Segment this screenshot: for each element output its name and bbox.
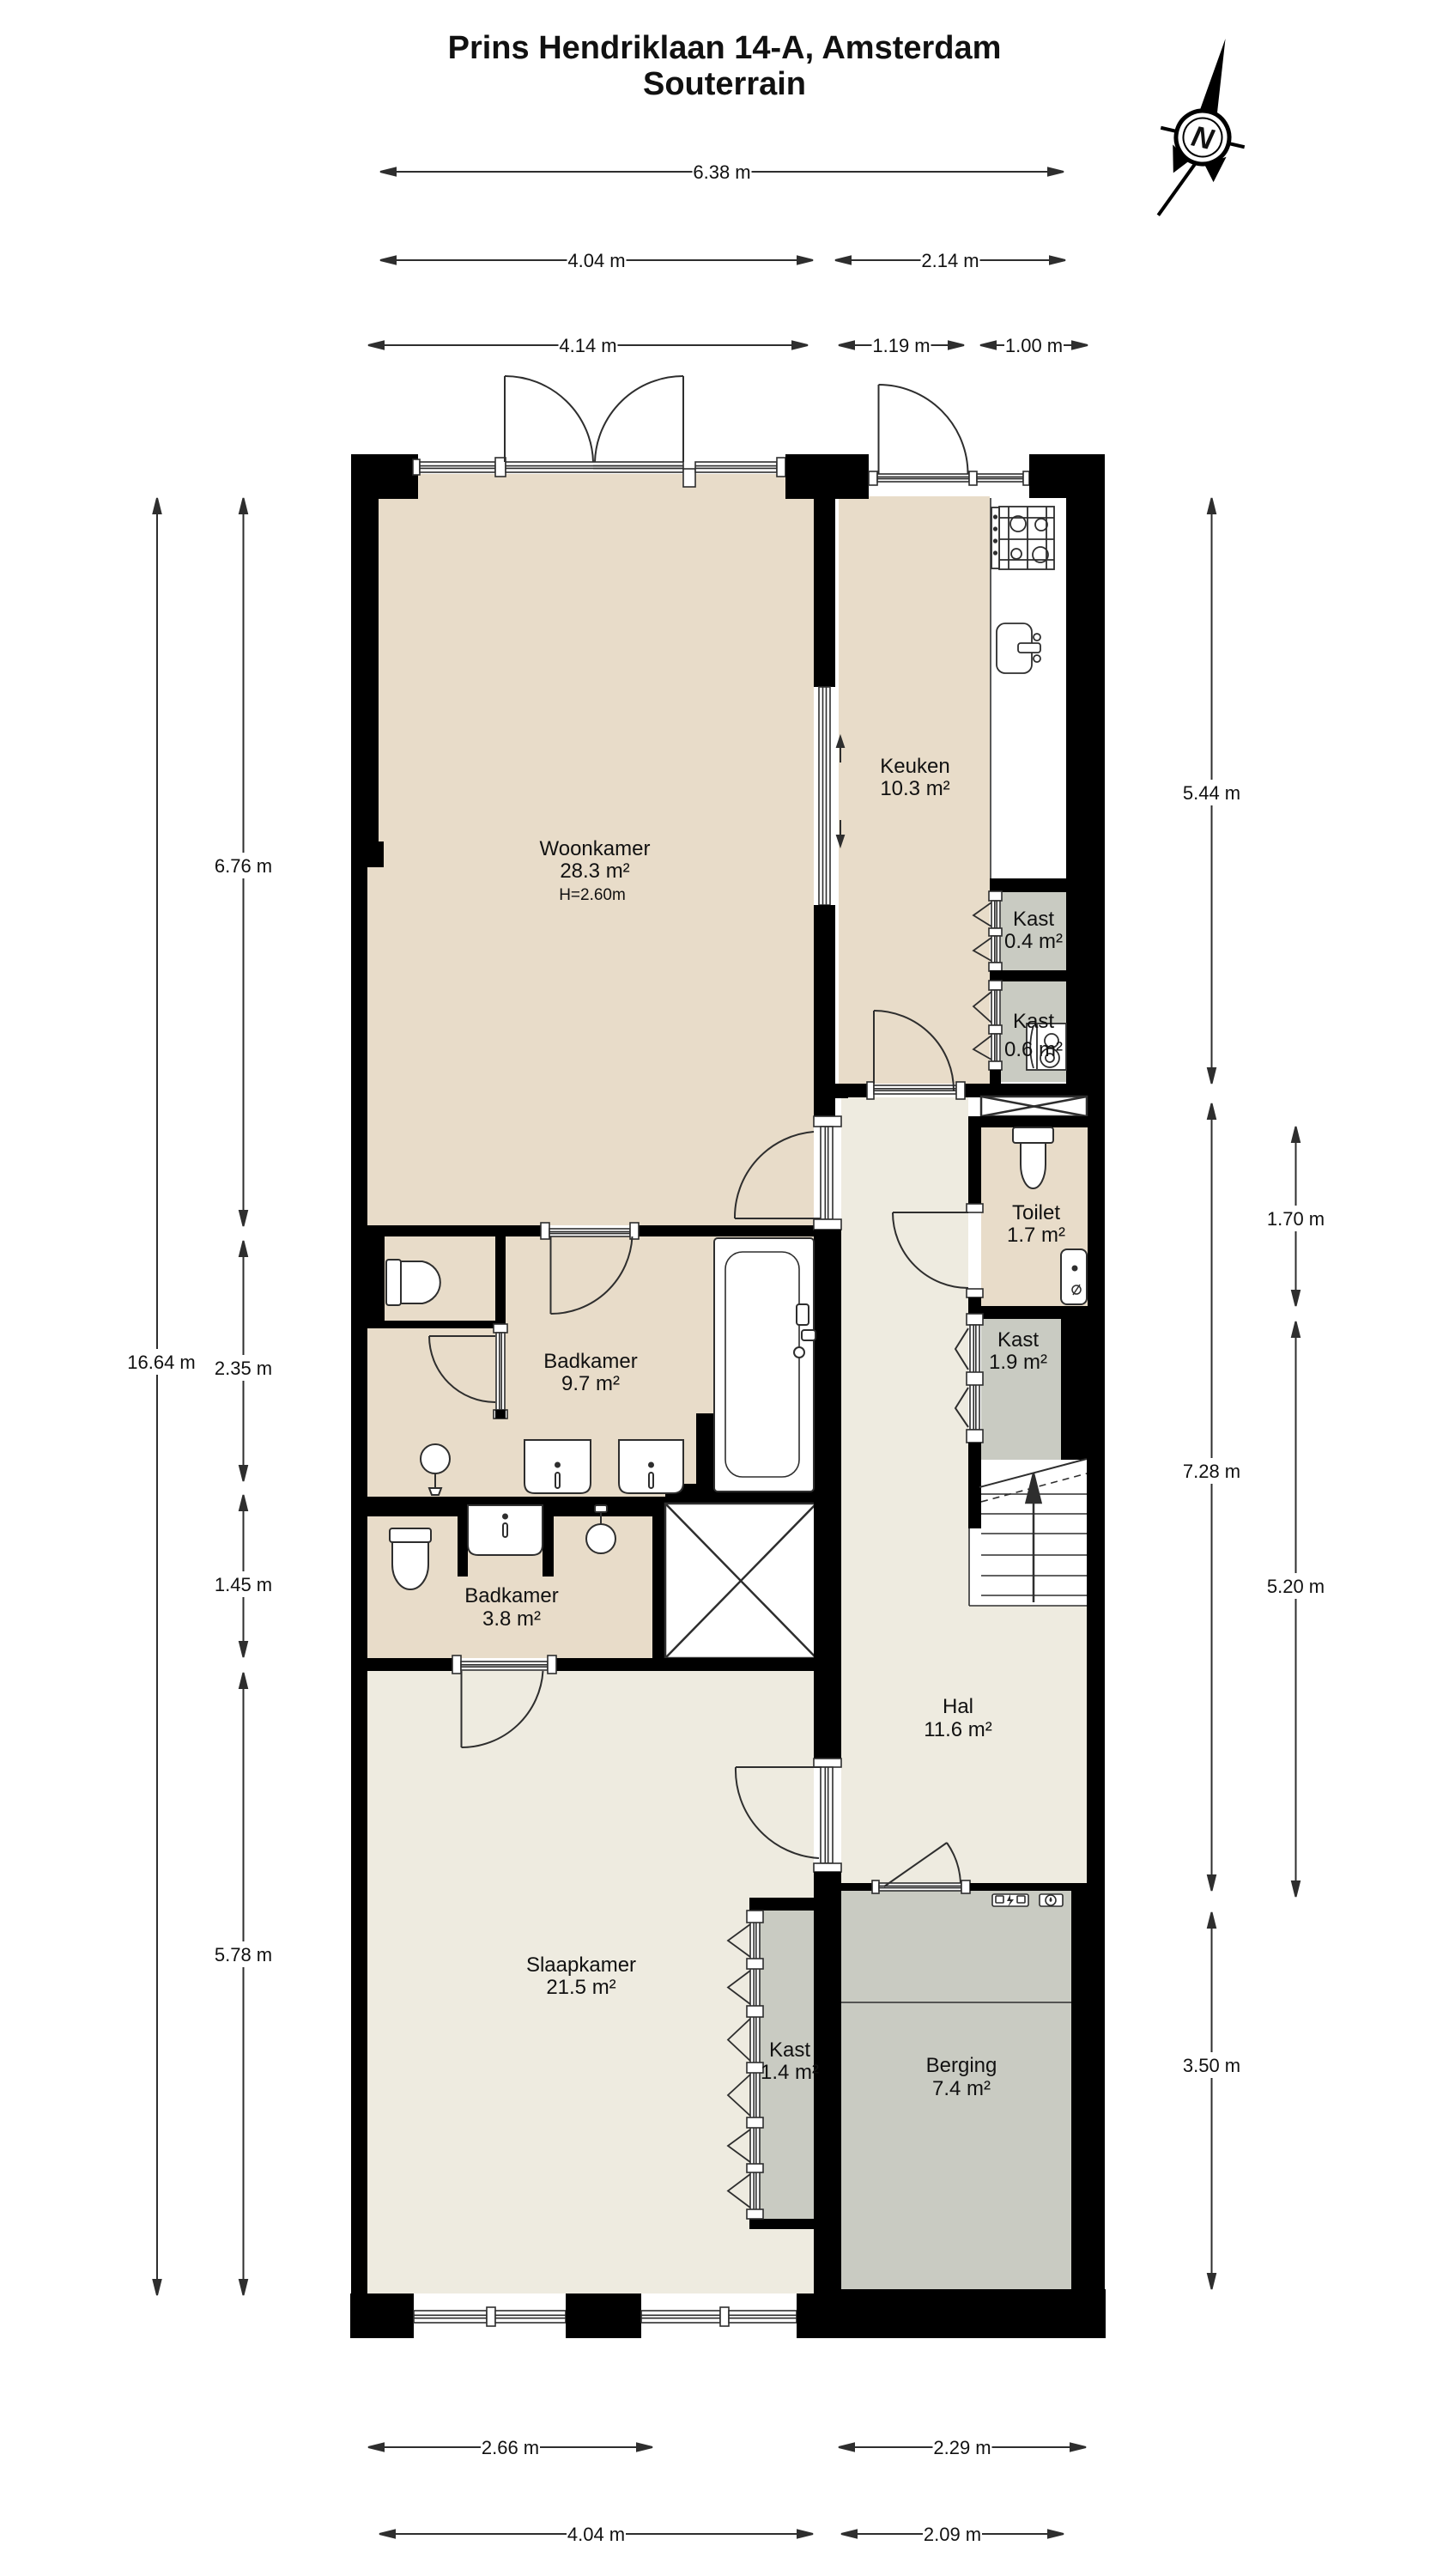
svg-text:28.3 m²: 28.3 m² (560, 860, 629, 883)
svg-text:4.14 m: 4.14 m (559, 335, 616, 356)
svg-text:5.44 m: 5.44 m (1183, 782, 1240, 804)
svg-text:Toilet: Toilet (1012, 1201, 1060, 1224)
svg-text:Hal: Hal (943, 1695, 973, 1718)
svg-text:9.7 m²: 9.7 m² (561, 1372, 620, 1395)
svg-text:H=2.60m: H=2.60m (559, 886, 626, 904)
svg-text:0.6 m²: 0.6 m² (1004, 1038, 1063, 1061)
svg-text:3.50 m: 3.50 m (1183, 2055, 1240, 2076)
svg-text:3.8 m²: 3.8 m² (482, 1607, 541, 1631)
svg-text:Slaapkamer: Slaapkamer (526, 1953, 636, 1977)
svg-text:2.09 m: 2.09 m (924, 2524, 981, 2545)
svg-text:0.4 m²: 0.4 m² (1004, 930, 1063, 953)
svg-text:4.04 m: 4.04 m (567, 2524, 625, 2545)
svg-text:Kast: Kast (1013, 1010, 1054, 1033)
svg-text:5.20 m: 5.20 m (1267, 1576, 1325, 1597)
svg-text:Badkamer: Badkamer (464, 1584, 558, 1607)
svg-text:2.66 m: 2.66 m (482, 2437, 539, 2458)
svg-text:Prins Hendriklaan 14-A, Amster: Prins Hendriklaan 14-A, Amsterdam (448, 30, 1002, 66)
svg-text:2.35 m: 2.35 m (215, 1358, 272, 1379)
svg-text:11.6 m²: 11.6 m² (924, 1718, 992, 1741)
svg-text:Kast: Kast (769, 2038, 810, 2062)
svg-text:Woonkamer: Woonkamer (540, 837, 651, 860)
svg-text:1.00 m: 1.00 m (1005, 335, 1063, 356)
svg-text:4.04 m: 4.04 m (567, 250, 625, 271)
svg-text:2.14 m: 2.14 m (921, 250, 979, 271)
svg-text:Kast: Kast (997, 1328, 1039, 1352)
svg-text:6.76 m: 6.76 m (215, 855, 272, 877)
svg-text:21.5 m²: 21.5 m² (546, 1976, 615, 1999)
svg-text:Berging: Berging (926, 2054, 997, 2077)
svg-text:Souterrain: Souterrain (643, 66, 806, 102)
svg-text:1.7 m²: 1.7 m² (1007, 1224, 1065, 1247)
svg-text:Kast: Kast (1013, 908, 1054, 931)
svg-text:Badkamer: Badkamer (543, 1350, 637, 1373)
svg-text:1.4 m²: 1.4 m² (761, 2061, 819, 2084)
svg-text:1.9 m²: 1.9 m² (989, 1351, 1047, 1374)
svg-text:16.64 m: 16.64 m (127, 1352, 196, 1373)
svg-text:6.38 m: 6.38 m (693, 161, 750, 183)
svg-text:10.3 m²: 10.3 m² (880, 777, 949, 800)
svg-text:5.78 m: 5.78 m (215, 1944, 272, 1965)
svg-text:1.19 m: 1.19 m (872, 335, 930, 356)
svg-text:1.70 m: 1.70 m (1267, 1208, 1325, 1230)
svg-text:2.29 m: 2.29 m (933, 2437, 991, 2458)
svg-text:1.45 m: 1.45 m (215, 1574, 272, 1595)
svg-text:7.28 m: 7.28 m (1183, 1461, 1240, 1482)
svg-text:Keuken: Keuken (880, 755, 949, 778)
svg-text:7.4 m²: 7.4 m² (932, 2077, 991, 2100)
